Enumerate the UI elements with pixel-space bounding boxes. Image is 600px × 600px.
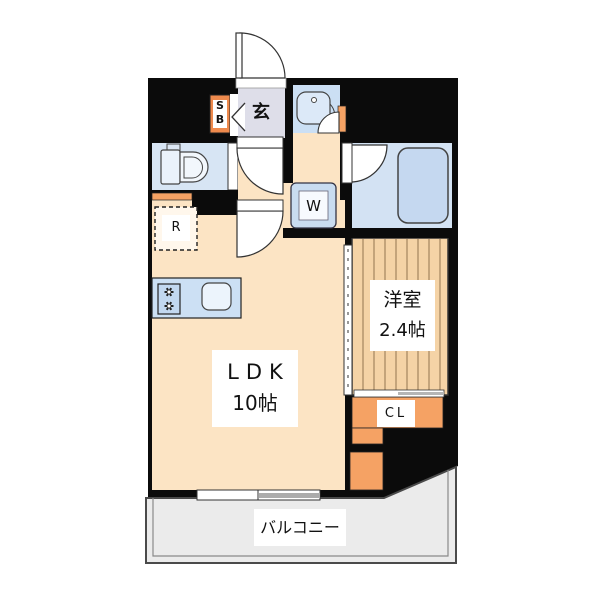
label-refrigerator: R [162,215,190,241]
kitchen-counter [152,278,241,318]
floor-plan: 玄 S B W R LDK 10帖 洋室 2.4帖 CL バルコニー [0,0,600,600]
wall-stub [192,190,238,215]
closet-slider [354,390,444,397]
western-room-name: 洋室 [370,284,435,316]
label-entrance: 玄 [244,98,278,124]
shoe-box-letter-s: S [212,99,228,113]
kitchen-sink-icon [202,283,231,310]
balcony-window [197,490,320,500]
western-room-size: 2.4帖 [370,316,435,346]
sliding-partition [344,245,352,395]
label-ldk: LDK 10帖 [212,350,298,427]
label-western-room: 洋室 2.4帖 [370,280,435,351]
ldk-size: 10帖 [212,388,298,418]
orange-wall-strip [152,193,192,200]
label-washer: W [299,196,328,216]
entry-door [236,33,285,78]
shoe-box-letter-b: B [212,113,228,127]
door-leaf [236,33,242,78]
label-balcony: バルコニー [254,509,346,546]
entry-opening [236,78,286,88]
stove-icon [158,284,180,314]
label-shoe-box: S B [212,99,228,127]
label-closet: CL [377,400,415,427]
wall-band [283,228,458,238]
bathtub-icon [398,148,448,223]
ldk-name: LDK [219,356,298,388]
